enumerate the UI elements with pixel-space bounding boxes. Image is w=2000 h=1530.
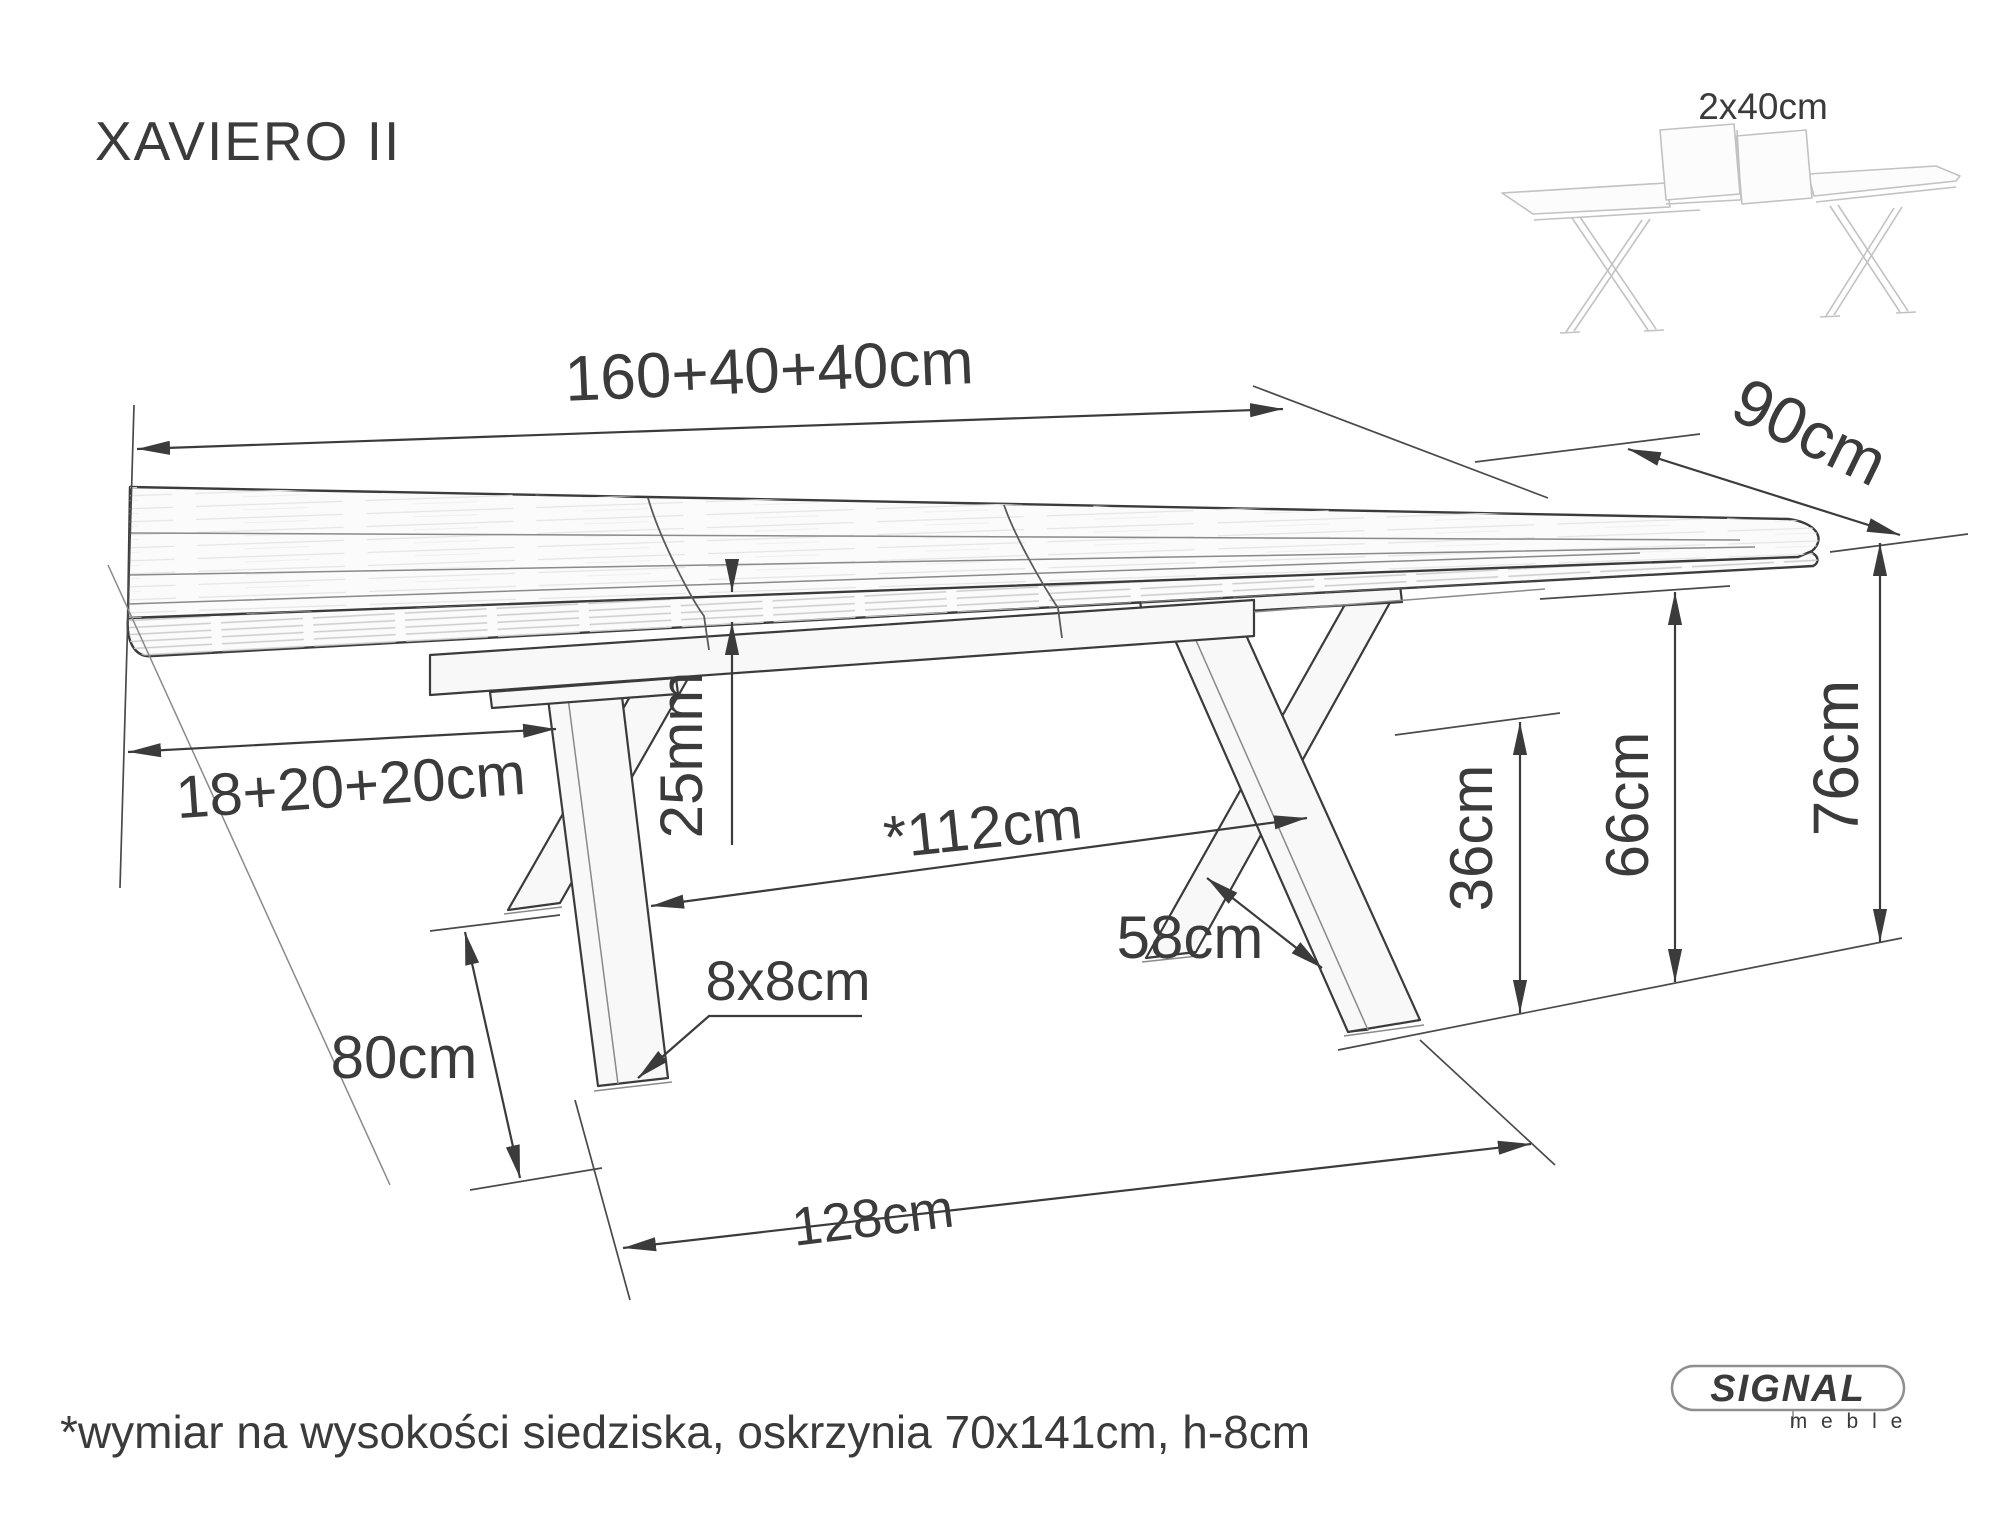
dim-label-depth: 90cm	[1721, 363, 1898, 500]
brand-logo: SIGNAL m e b l e	[1672, 1366, 1906, 1433]
dim-label-leg-profile: 8x8cm	[706, 949, 871, 1012]
dim-label-leg-spread: 58cm	[1117, 904, 1264, 971]
dim-label-under-frame-height: 66cm	[1594, 732, 1661, 879]
dim-label-total-height: 76cm	[1800, 680, 1872, 837]
ext-80-top	[430, 915, 560, 931]
ground-reference-line	[1338, 938, 1902, 1050]
page-title: XAVIERO II	[95, 110, 401, 172]
thumbnail-right-leg-x	[1820, 205, 1916, 317]
dimension-labels: 160+40+40cm 90cm 18+20+20cm 25mm *112cm …	[174, 325, 1899, 1258]
dim-line-length	[137, 409, 1283, 449]
thumbnail-top-right	[1808, 166, 1960, 196]
ext-table-tip	[1830, 534, 1968, 552]
ext-80-bottom	[470, 1168, 602, 1190]
dim-label-base-span: 128cm	[789, 1178, 957, 1257]
thumbnail-leaf-panel-1	[1660, 124, 1740, 200]
xaviero-dimension-diagram: 2x40cm	[0, 0, 2000, 1530]
footnote-text: *wymiar na wysokości siedziska, oskrzyni…	[60, 1406, 1310, 1458]
dim-line-base-span	[623, 1144, 1531, 1248]
thumbnail-left-leg-x	[1560, 217, 1664, 333]
thumbnail-extension-label: 2x40cm	[1698, 86, 1828, 127]
thumbnail-leaf-panel-2	[1736, 130, 1812, 204]
dim-label-left-sections: 18+20+20cm	[174, 740, 528, 831]
ext-128-left	[575, 1100, 630, 1300]
dim-label-thickness: 25mm	[648, 672, 715, 839]
ext-66-top	[1540, 586, 1730, 599]
dim-label-cross-height: 36cm	[1438, 765, 1505, 912]
extended-table-thumbnail: 2x40cm	[1502, 86, 1960, 333]
brand-logo-name: SIGNAL	[1710, 1368, 1866, 1410]
dim-label-leg-length: 80cm	[331, 1024, 478, 1091]
thumbnail-top-left	[1502, 183, 1670, 214]
ext-depth-back	[1475, 434, 1700, 462]
ext-36-top	[1395, 713, 1560, 735]
ext-length-right	[1253, 386, 1548, 498]
brand-logo-subtitle: m e b l e	[1790, 1410, 1907, 1433]
technical-drawing-page: 2x40cm	[0, 0, 2000, 1530]
leader-leg-profile	[638, 1016, 862, 1078]
dim-label-length: 160+40+40cm	[563, 325, 975, 415]
perspective-guide-line	[108, 565, 390, 1185]
dim-label-inner-clearance: *112cm	[880, 784, 1085, 871]
ext-128-right	[1420, 1040, 1555, 1165]
